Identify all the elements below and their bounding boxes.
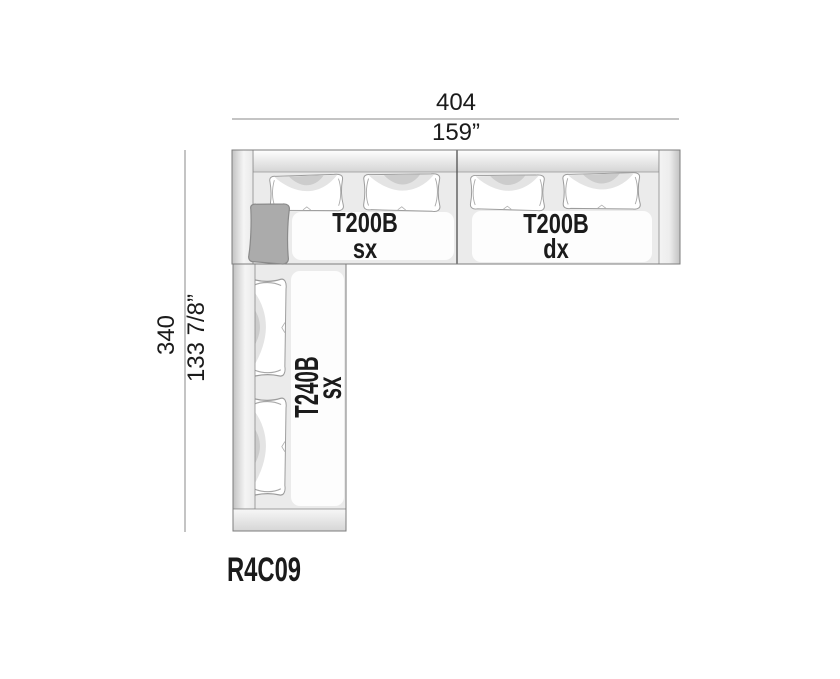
module-label-t240b-sx-variant: sx [316, 338, 344, 437]
back-cushion [470, 174, 544, 211]
bottom-armrest [233, 509, 346, 531]
backrest-panel [233, 264, 255, 509]
backrest-panel [253, 150, 659, 172]
back-cushion [563, 173, 640, 210]
right-armrest [659, 150, 680, 264]
sofa-plan-diagram: 404 159” 340 133 7/8” T200B sx T200B dx … [0, 0, 840, 679]
module-label-t200b-dx-variant: dx [494, 235, 619, 263]
product-code: R4C09 [208, 553, 320, 587]
corner-accent-cushion [248, 203, 289, 264]
width-dimension-inches: 159” [376, 122, 536, 144]
width-dimension-cm: 404 [376, 92, 536, 114]
module-label-t200b-sx-variant: sx [303, 235, 428, 263]
depth-dimension-cm: 340 [156, 255, 178, 415]
depth-dimension-inches: 133 7/8” [186, 258, 208, 418]
back-cushion [364, 173, 441, 211]
